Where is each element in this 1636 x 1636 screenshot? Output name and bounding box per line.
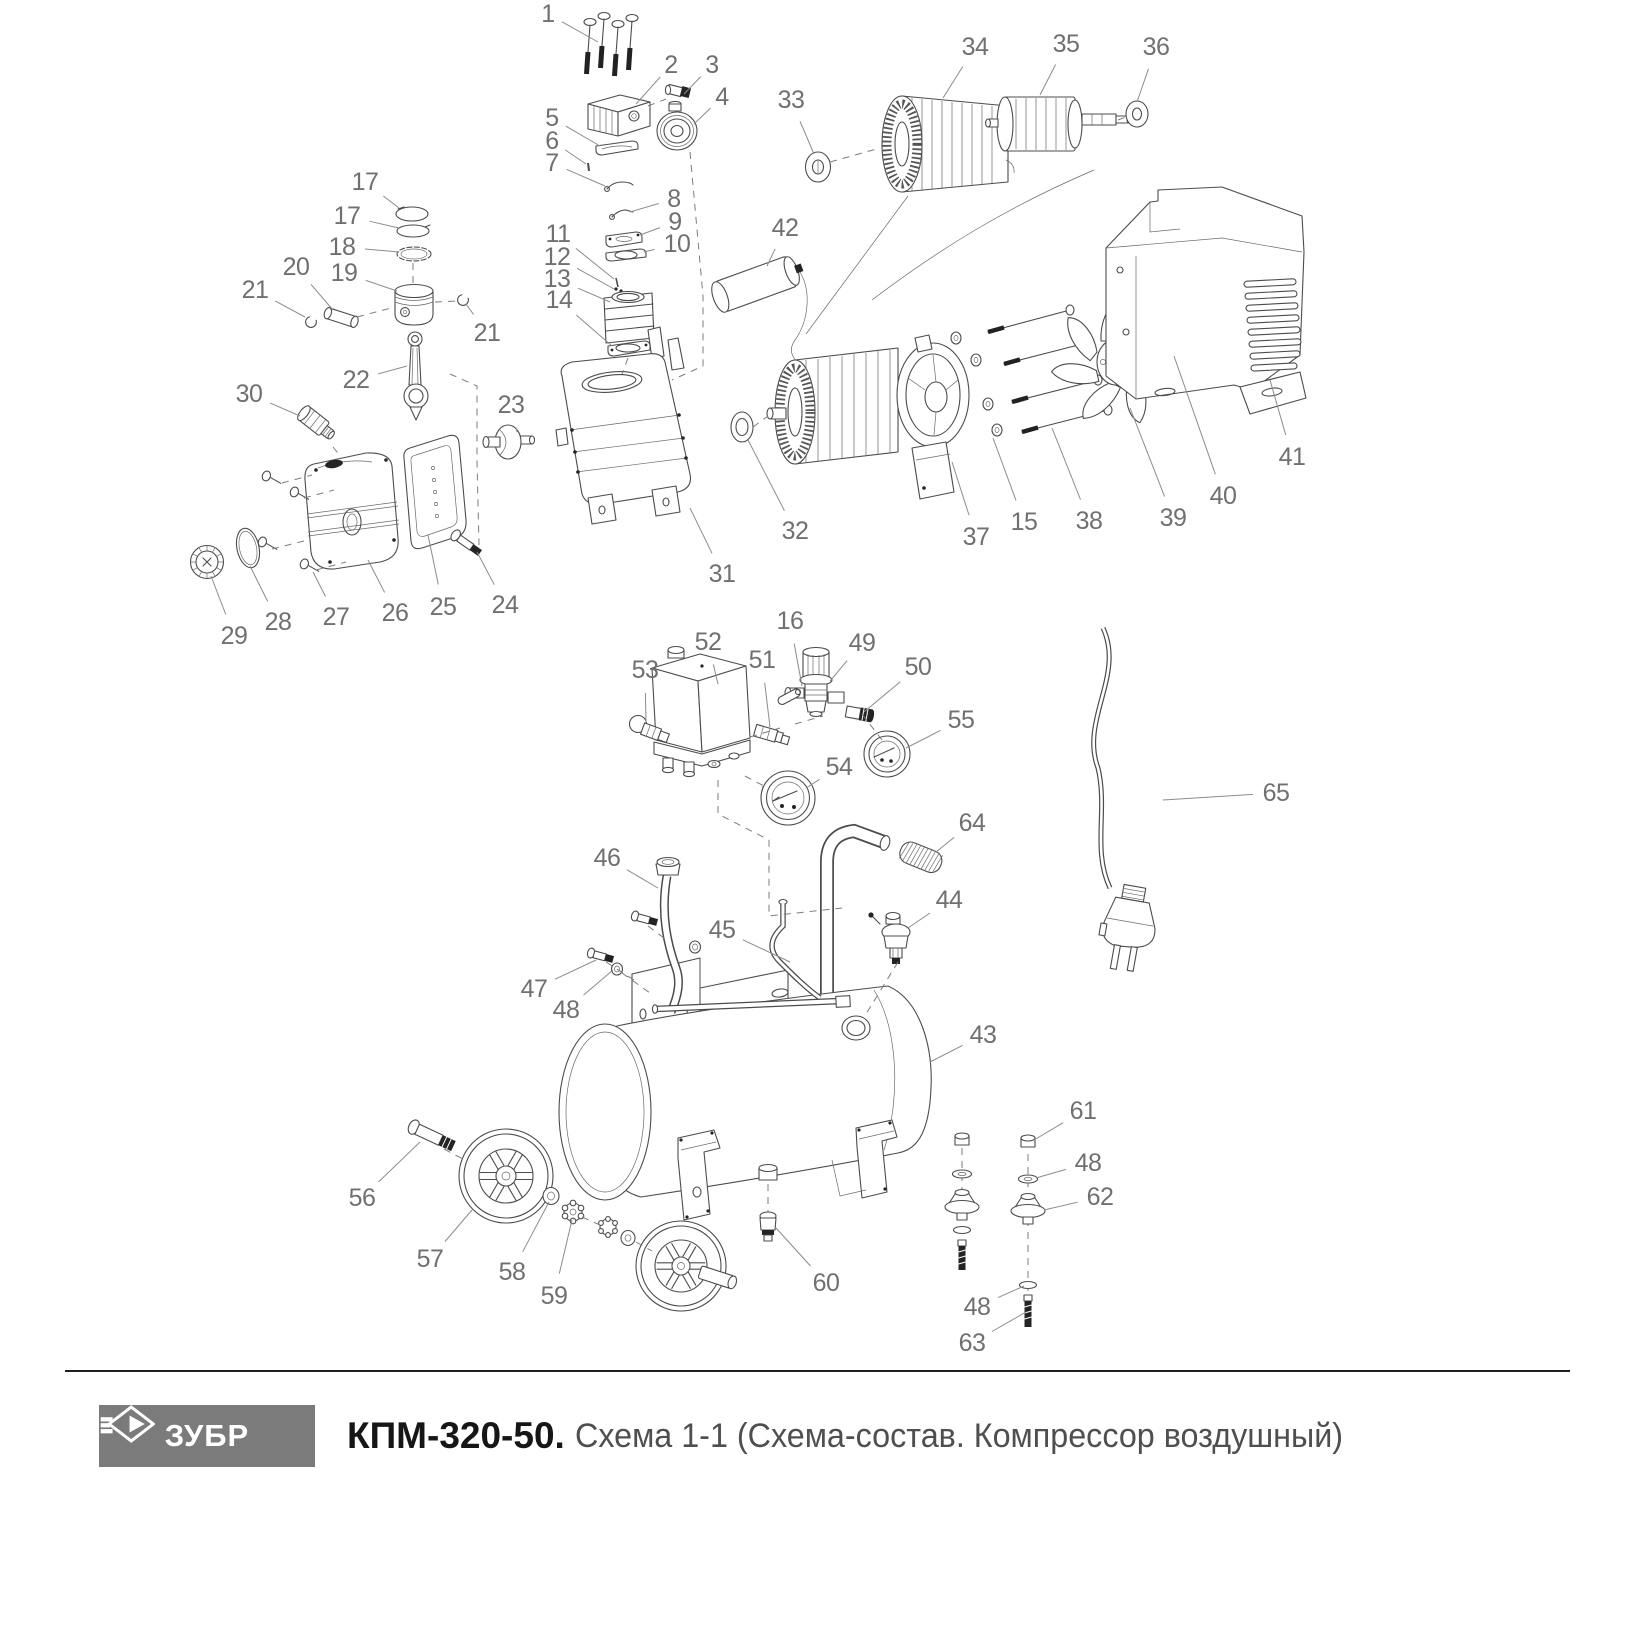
svg-text:52: 52: [695, 628, 722, 656]
rotor: [986, 97, 1131, 151]
callout-48: 48: [553, 970, 613, 1024]
svg-text:14: 14: [546, 286, 573, 314]
svg-text:21: 21: [474, 319, 501, 347]
svg-text:41: 41: [1279, 443, 1306, 471]
svg-text:57: 57: [417, 1245, 444, 1273]
callout-17: 17: [334, 202, 399, 230]
svg-text:35: 35: [1053, 30, 1080, 58]
motor-bearing-left: [806, 152, 831, 182]
fan-shroud: [1106, 187, 1306, 414]
svg-text:61: 61: [1070, 1097, 1097, 1125]
svg-text:37: 37: [963, 523, 990, 551]
piston-pin: [323, 307, 360, 329]
svg-text:46: 46: [594, 844, 621, 872]
svg-text:19: 19: [331, 259, 358, 287]
callout-15: 15: [993, 438, 1037, 536]
svg-text:23: 23: [498, 391, 525, 419]
svg-text:42: 42: [772, 214, 799, 242]
callout-59: 59: [541, 1220, 572, 1310]
callout-22: 22: [343, 366, 407, 394]
gauge-55: [864, 731, 910, 777]
valve-plates: [588, 141, 646, 293]
assembly-line-a: [806, 196, 908, 334]
callout-51: 51: [749, 646, 776, 727]
schematic-page: 1234567891011121314171718192021212223242…: [0, 0, 1636, 1636]
pressure-switch: [652, 647, 750, 777]
cover-oring: [233, 526, 263, 570]
callout-26: 26: [368, 560, 408, 627]
svg-text:55: 55: [948, 706, 975, 734]
piston-rings: [396, 207, 431, 261]
callout-2: 2: [636, 51, 678, 104]
svg-text:1: 1: [541, 0, 554, 28]
svg-text:2: 2: [664, 51, 677, 79]
callout-39: 39: [1130, 408, 1186, 532]
cylinder-gasket: [608, 341, 650, 356]
svg-text:38: 38: [1076, 507, 1103, 535]
callout-64: 64: [936, 809, 986, 852]
svg-text:29: 29: [221, 622, 248, 650]
piston: [395, 285, 433, 326]
callout-30: 30: [236, 380, 300, 416]
svg-text:28: 28: [265, 608, 292, 636]
svg-text:20: 20: [283, 253, 310, 281]
oil-plug: [191, 546, 224, 579]
callout-25: 25: [428, 535, 456, 621]
callout-55: 55: [906, 706, 974, 748]
svg-text:25: 25: [430, 593, 457, 621]
callout-61: 61: [1034, 1097, 1096, 1140]
callout-46: 46: [594, 844, 658, 888]
svg-text:21: 21: [242, 276, 269, 304]
svg-text:32: 32: [782, 517, 809, 545]
callout-34: 34: [943, 33, 989, 98]
svg-text:30: 30: [236, 380, 263, 408]
callout-37: 37: [952, 462, 989, 551]
fitting-50: [845, 705, 875, 723]
callout-44: 44: [908, 886, 963, 928]
stator: [882, 96, 1016, 192]
tank-port: [842, 1016, 870, 1040]
svg-text:7: 7: [545, 149, 558, 177]
svg-text:34: 34: [962, 33, 989, 61]
svg-text:64: 64: [959, 809, 986, 837]
svg-text:47: 47: [521, 975, 548, 1003]
callout-49: 49: [830, 629, 875, 681]
air-filter: [295, 404, 338, 443]
shaft-seal: [731, 412, 753, 442]
footer-divider: [65, 1370, 1570, 1372]
svg-text:65: 65: [1263, 779, 1290, 807]
exploded-diagram: 1234567891011121314171718192021212223242…: [0, 0, 1636, 1360]
callout-4: 4: [694, 83, 729, 124]
cylinder: [604, 292, 654, 344]
schema-title: КПМ-320-50. Схема 1-1 (Схема-состав. Ком…: [347, 1405, 1383, 1467]
brand-logo: ЗУБР: [99, 1405, 315, 1467]
connecting-rod: [404, 332, 428, 420]
svg-text:36: 36: [1143, 33, 1170, 61]
crankshaft: [483, 425, 535, 459]
crankcase: [556, 327, 691, 524]
svg-text:48: 48: [964, 1293, 991, 1321]
svg-text:33: 33: [778, 86, 805, 114]
callout-27: 27: [313, 572, 349, 631]
callout-56: 56: [349, 1142, 420, 1212]
svg-text:48: 48: [1075, 1149, 1102, 1177]
svg-text:49: 49: [849, 629, 876, 657]
svg-text:59: 59: [541, 1282, 568, 1310]
crankcase-cover: [305, 453, 399, 569]
motor-assembled: [767, 348, 898, 464]
callout-28: 28: [250, 566, 291, 636]
callout-48: 48: [964, 1286, 1024, 1321]
svg-text:44: 44: [936, 886, 963, 914]
callout-21: 21: [242, 276, 305, 317]
svg-text:22: 22: [343, 366, 370, 394]
callout-10: 10: [644, 230, 690, 258]
callout-14: 14: [546, 286, 612, 346]
svg-text:56: 56: [349, 1184, 376, 1212]
callout-21: 21: [466, 304, 500, 347]
svg-text:16: 16: [777, 607, 804, 635]
callout-54: 54: [806, 753, 853, 788]
callout-20: 20: [283, 253, 333, 310]
callout-33: 33: [778, 86, 814, 154]
svg-text:45: 45: [709, 916, 736, 944]
head-bolts: [584, 13, 638, 77]
callout-62: 62: [1044, 1183, 1113, 1211]
svg-text:26: 26: [382, 599, 409, 627]
cylinder-head: [588, 95, 650, 136]
schema-subtitle: Схема 1-1 (Схема-состав. Компрессор возд…: [575, 1417, 1343, 1456]
svg-text:4: 4: [715, 83, 729, 111]
svg-text:43: 43: [970, 1021, 997, 1049]
svg-text:40: 40: [1210, 482, 1237, 510]
fitting-51: [753, 724, 790, 745]
brand-name: ЗУБР: [165, 1418, 249, 1454]
callout-50: 50: [864, 653, 931, 712]
regulator: [777, 648, 844, 717]
svg-text:48: 48: [553, 996, 580, 1024]
svg-text:24: 24: [492, 591, 519, 619]
svg-text:54: 54: [826, 753, 853, 781]
svg-text:51: 51: [749, 646, 776, 674]
callout-18: 18: [329, 233, 399, 261]
callout-19: 19: [331, 259, 397, 291]
handle-tube: [827, 831, 891, 1004]
callout-57: 57: [417, 1210, 472, 1273]
callout-24: 24: [477, 552, 519, 619]
callout-48: 48: [1036, 1149, 1101, 1178]
foot-column-left: [945, 1133, 979, 1270]
svg-text:62: 62: [1087, 1183, 1114, 1211]
svg-text:53: 53: [632, 656, 659, 684]
motor-bearing-right: [1126, 101, 1148, 127]
svg-text:27: 27: [323, 603, 350, 631]
svg-text:60: 60: [813, 1269, 840, 1297]
capacitor: [708, 252, 807, 364]
motor-end-bell: [897, 335, 969, 499]
wheel-left: [459, 1129, 553, 1223]
callout-38: 38: [1052, 428, 1102, 535]
svg-text:58: 58: [499, 1258, 526, 1286]
callout-60: 60: [776, 1228, 839, 1297]
foot-column-right: [1011, 1135, 1045, 1327]
svg-text:50: 50: [905, 653, 932, 681]
callout-36: 36: [1137, 33, 1169, 102]
callout-43: 43: [930, 1021, 996, 1062]
svg-text:15: 15: [1011, 508, 1038, 536]
callout-16: 16: [777, 607, 804, 686]
svg-text:39: 39: [1160, 504, 1187, 532]
svg-text:18: 18: [329, 233, 356, 261]
check-valve: [868, 912, 910, 964]
callout-65: 65: [1163, 779, 1289, 807]
power-cord: [1094, 628, 1163, 975]
schema-model: КПМ-320-50.: [347, 1415, 565, 1457]
callout-3: 3: [684, 51, 719, 94]
wheel-right: [636, 1221, 738, 1311]
handle-grip-spring: [897, 839, 945, 876]
gauge-54: [761, 771, 815, 825]
head-fitting: [665, 84, 691, 111]
svg-text:17: 17: [334, 202, 361, 230]
zubr-logo-icon: [99, 1405, 155, 1443]
svg-text:17: 17: [352, 168, 379, 196]
callout-7: 7: [545, 149, 605, 186]
callout-29: 29: [211, 576, 247, 650]
callout-35: 35: [1040, 30, 1079, 95]
svg-text:31: 31: [709, 560, 736, 588]
crank-pulley: [657, 112, 697, 150]
svg-text:63: 63: [959, 1329, 986, 1357]
svg-text:10: 10: [664, 230, 691, 258]
callout-31: 31: [690, 508, 735, 588]
svg-text:3: 3: [705, 51, 718, 79]
